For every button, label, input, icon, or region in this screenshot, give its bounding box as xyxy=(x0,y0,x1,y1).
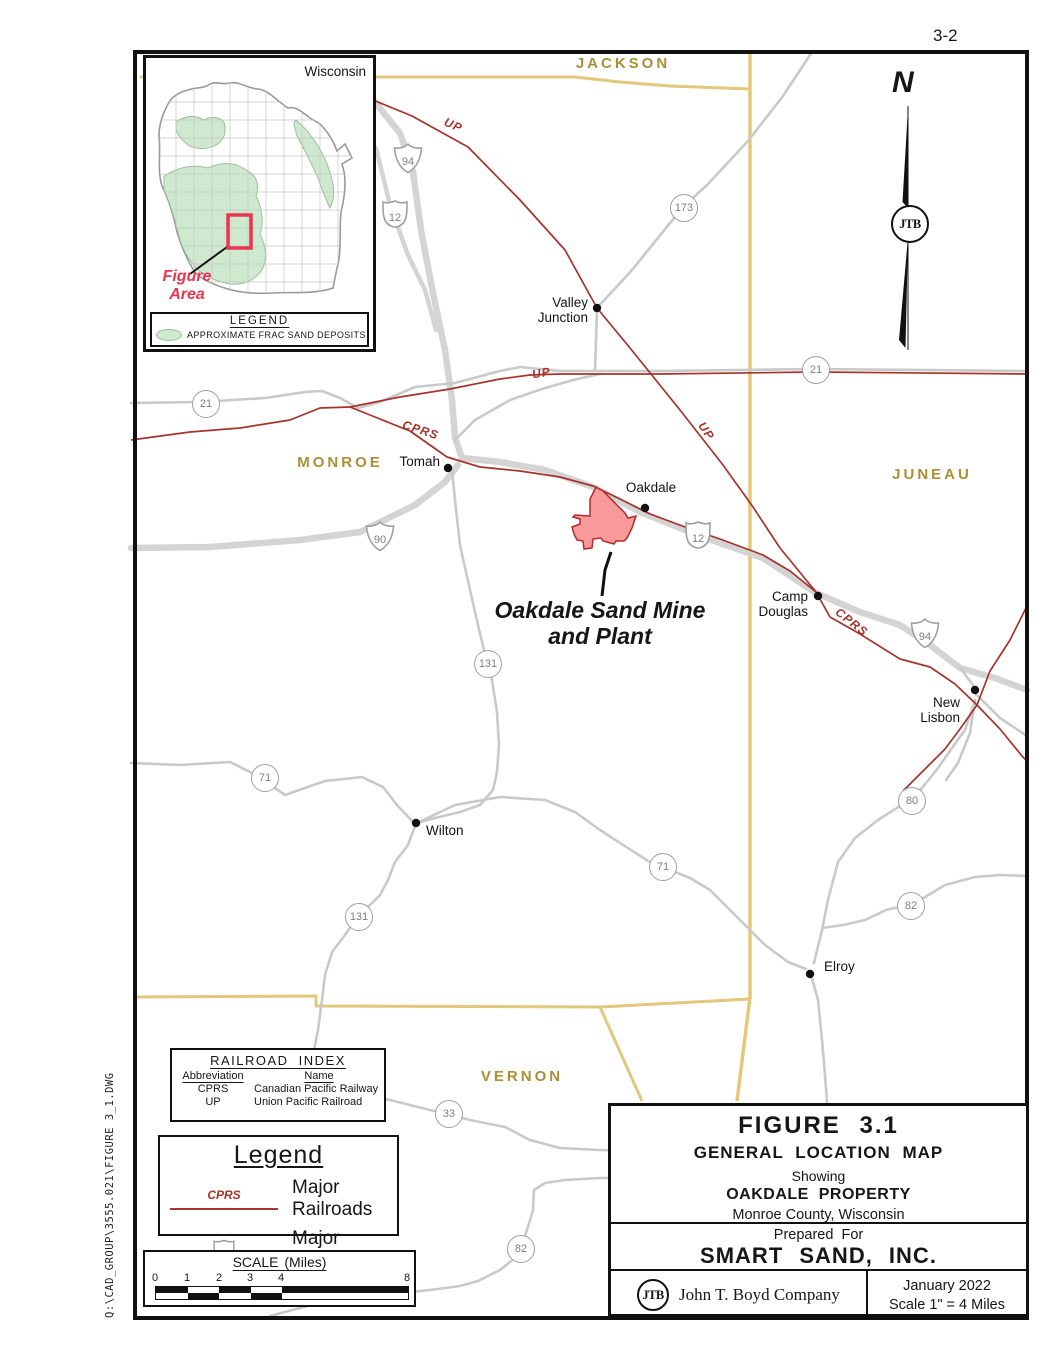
town-camp-douglas: Camp Douglas xyxy=(744,590,808,620)
shield-state-131-n: 131 xyxy=(474,650,502,678)
county-label-monroe: MONROE xyxy=(278,454,402,471)
railroad-index-row: UP Union Pacific Railroad xyxy=(172,1096,384,1108)
property-location: Monroe County, Wisconsin xyxy=(611,1207,1026,1223)
town-dot xyxy=(593,304,601,312)
shield-label: 131 xyxy=(346,904,372,930)
shield-state-80: 80 xyxy=(898,787,926,815)
inset-state-label: Wisconsin xyxy=(304,64,366,79)
shield-label: 131 xyxy=(475,651,501,677)
shield-label: 82 xyxy=(508,1236,534,1262)
scale-tick: 1 xyxy=(184,1272,190,1284)
inset-legend-box: LEGEND APPROXIMATE FRAC SAND DEPOSITS xyxy=(150,312,369,347)
shield-label: 173 xyxy=(671,195,697,221)
town-oakdale: Oakdale xyxy=(608,481,694,496)
railroad-index-title: RAILROAD INDEX xyxy=(210,1053,346,1068)
scale-tick: 8 xyxy=(404,1272,410,1284)
shield-label: 94 xyxy=(909,616,941,654)
town-dot xyxy=(641,504,649,512)
page-number: 3-2 xyxy=(933,26,958,46)
shield-state-33: 33 xyxy=(435,1100,463,1128)
property-name: OAKDALE PROPERTY xyxy=(611,1186,1026,1204)
scale-tick: 0 xyxy=(152,1272,158,1284)
legend-box: Legend CPRS Major Railroads 94 Major Roa… xyxy=(158,1135,399,1236)
railroad-index-box: RAILROAD INDEX Abbreviation Name CPRS Ca… xyxy=(170,1048,386,1122)
inset-legend-title: LEGEND xyxy=(230,315,289,327)
shield-label: 12 xyxy=(379,197,411,235)
shield-interstate-94-e: 94 xyxy=(909,616,941,650)
figure-scale: Scale 1" = 4 Miles xyxy=(868,1297,1026,1313)
figure-date: January 2022 xyxy=(868,1278,1026,1294)
inset-map: Wisconsin Figure Area LEGEND APPROXIMATE… xyxy=(143,55,376,352)
scale-bar xyxy=(155,1286,409,1300)
county-label-vernon: VERNON xyxy=(458,1068,586,1085)
scale-bar-box: SCALE (Miles) 0 1 2 3 4 8 xyxy=(143,1250,416,1307)
showing-label: Showing xyxy=(611,1168,1026,1184)
town-dot xyxy=(971,686,979,694)
jtb-logo: JTB xyxy=(637,1279,669,1311)
shield-state-173: 173 xyxy=(670,194,698,222)
town-dot xyxy=(814,592,822,600)
mine-label: Oakdale Sand Mine and Plant xyxy=(478,597,722,650)
map-title: GENERAL LOCATION MAP xyxy=(611,1143,1026,1163)
town-dot xyxy=(444,464,452,472)
shield-state-131-s: 131 xyxy=(345,903,373,931)
shield-state-71-w: 71 xyxy=(251,764,279,792)
shield-label: 12 xyxy=(682,518,714,556)
shield-label: 80 xyxy=(899,788,925,814)
railroad-index-row: CPRS Canadian Pacific Railway xyxy=(172,1083,384,1095)
shield-interstate-90: 90 xyxy=(364,519,396,553)
mine-polygon xyxy=(572,487,636,549)
cad-file-path: Q:\CAD_GROUP\3555.021\FIGURE 3_1.DWG xyxy=(104,1046,116,1318)
legend-railroad-symbol: CPRS xyxy=(170,1188,278,1210)
legend-railroads-label: Major Railroads xyxy=(292,1177,389,1221)
jtb-compass-logo: JTB xyxy=(891,205,929,243)
town-tomah: Tomah xyxy=(392,455,440,470)
shield-us-12-oakdale: 12 xyxy=(682,518,714,552)
legend-title: Legend xyxy=(234,1141,323,1169)
shield-label: 71 xyxy=(252,765,278,791)
shield-us-12-nw: 12 xyxy=(379,197,411,231)
railroad-index-col-abbreviation: Abbreviation xyxy=(172,1070,254,1082)
railroad-index-col-name: Name xyxy=(254,1070,384,1082)
shield-state-21-e: 21 xyxy=(802,356,830,384)
shield-label: 94 xyxy=(392,141,424,179)
figure-area-label: Figure Area xyxy=(154,268,220,305)
scale-tick: 2 xyxy=(216,1272,222,1284)
town-elroy: Elroy xyxy=(824,960,874,975)
railroad-abbr: UP xyxy=(172,1096,254,1108)
railroad-name: Union Pacific Railroad xyxy=(254,1096,384,1108)
shield-label: 90 xyxy=(364,519,396,557)
company-name: John T. Boyd Company xyxy=(679,1285,840,1305)
town-dot xyxy=(806,970,814,978)
railroad-name: Canadian Pacific Railway xyxy=(254,1083,384,1095)
figure-number: FIGURE 3.1 xyxy=(611,1106,1026,1140)
inset-wisconsin-svg xyxy=(146,58,373,349)
scale-title: SCALE (Miles) xyxy=(233,1254,327,1270)
shield-state-71-se: 71 xyxy=(649,853,677,881)
shield-state-21-w: 21 xyxy=(192,390,220,418)
prepared-for-label: Prepared For xyxy=(611,1224,1026,1243)
figure-page: 3-2 Q:\CAD_GROUP\3555.021\FIGURE 3_1.DWG… xyxy=(0,0,1055,1365)
scale-tick: 4 xyxy=(278,1272,284,1284)
shield-state-82-sw: 82 xyxy=(507,1235,535,1263)
shield-interstate-94-nw: 94 xyxy=(392,141,424,175)
deposit-swatch xyxy=(156,329,182,341)
shield-label: 21 xyxy=(193,391,219,417)
county-label-jackson: JACKSON xyxy=(550,55,696,72)
shield-label: 71 xyxy=(650,854,676,880)
shield-label: 33 xyxy=(436,1101,462,1127)
shield-label: 82 xyxy=(898,893,924,919)
legend-railroads-item: CPRS Major Railroads xyxy=(170,1177,389,1221)
client-name: SMART SAND, INC. xyxy=(611,1243,1026,1269)
town-new-lisbon: New Lisbon xyxy=(898,696,960,726)
title-block: FIGURE 3.1 GENERAL LOCATION MAP Showing … xyxy=(608,1103,1029,1317)
town-wilton: Wilton xyxy=(426,824,486,839)
railroad-abbr: CPRS xyxy=(172,1083,254,1095)
shield-state-82-e: 82 xyxy=(897,892,925,920)
mine-leader-line xyxy=(602,552,611,596)
inset-legend-item: APPROXIMATE FRAC SAND DEPOSITS xyxy=(187,330,366,340)
scale-ticks: 0 1 2 3 4 8 xyxy=(145,1272,414,1284)
county-label-juneau: JUNEAU xyxy=(868,466,996,483)
scale-tick: 3 xyxy=(247,1272,253,1284)
shield-label: 21 xyxy=(803,357,829,383)
town-dot xyxy=(412,819,420,827)
town-valley-junction: Valley Junction xyxy=(502,296,588,326)
north-label: N xyxy=(892,66,914,100)
